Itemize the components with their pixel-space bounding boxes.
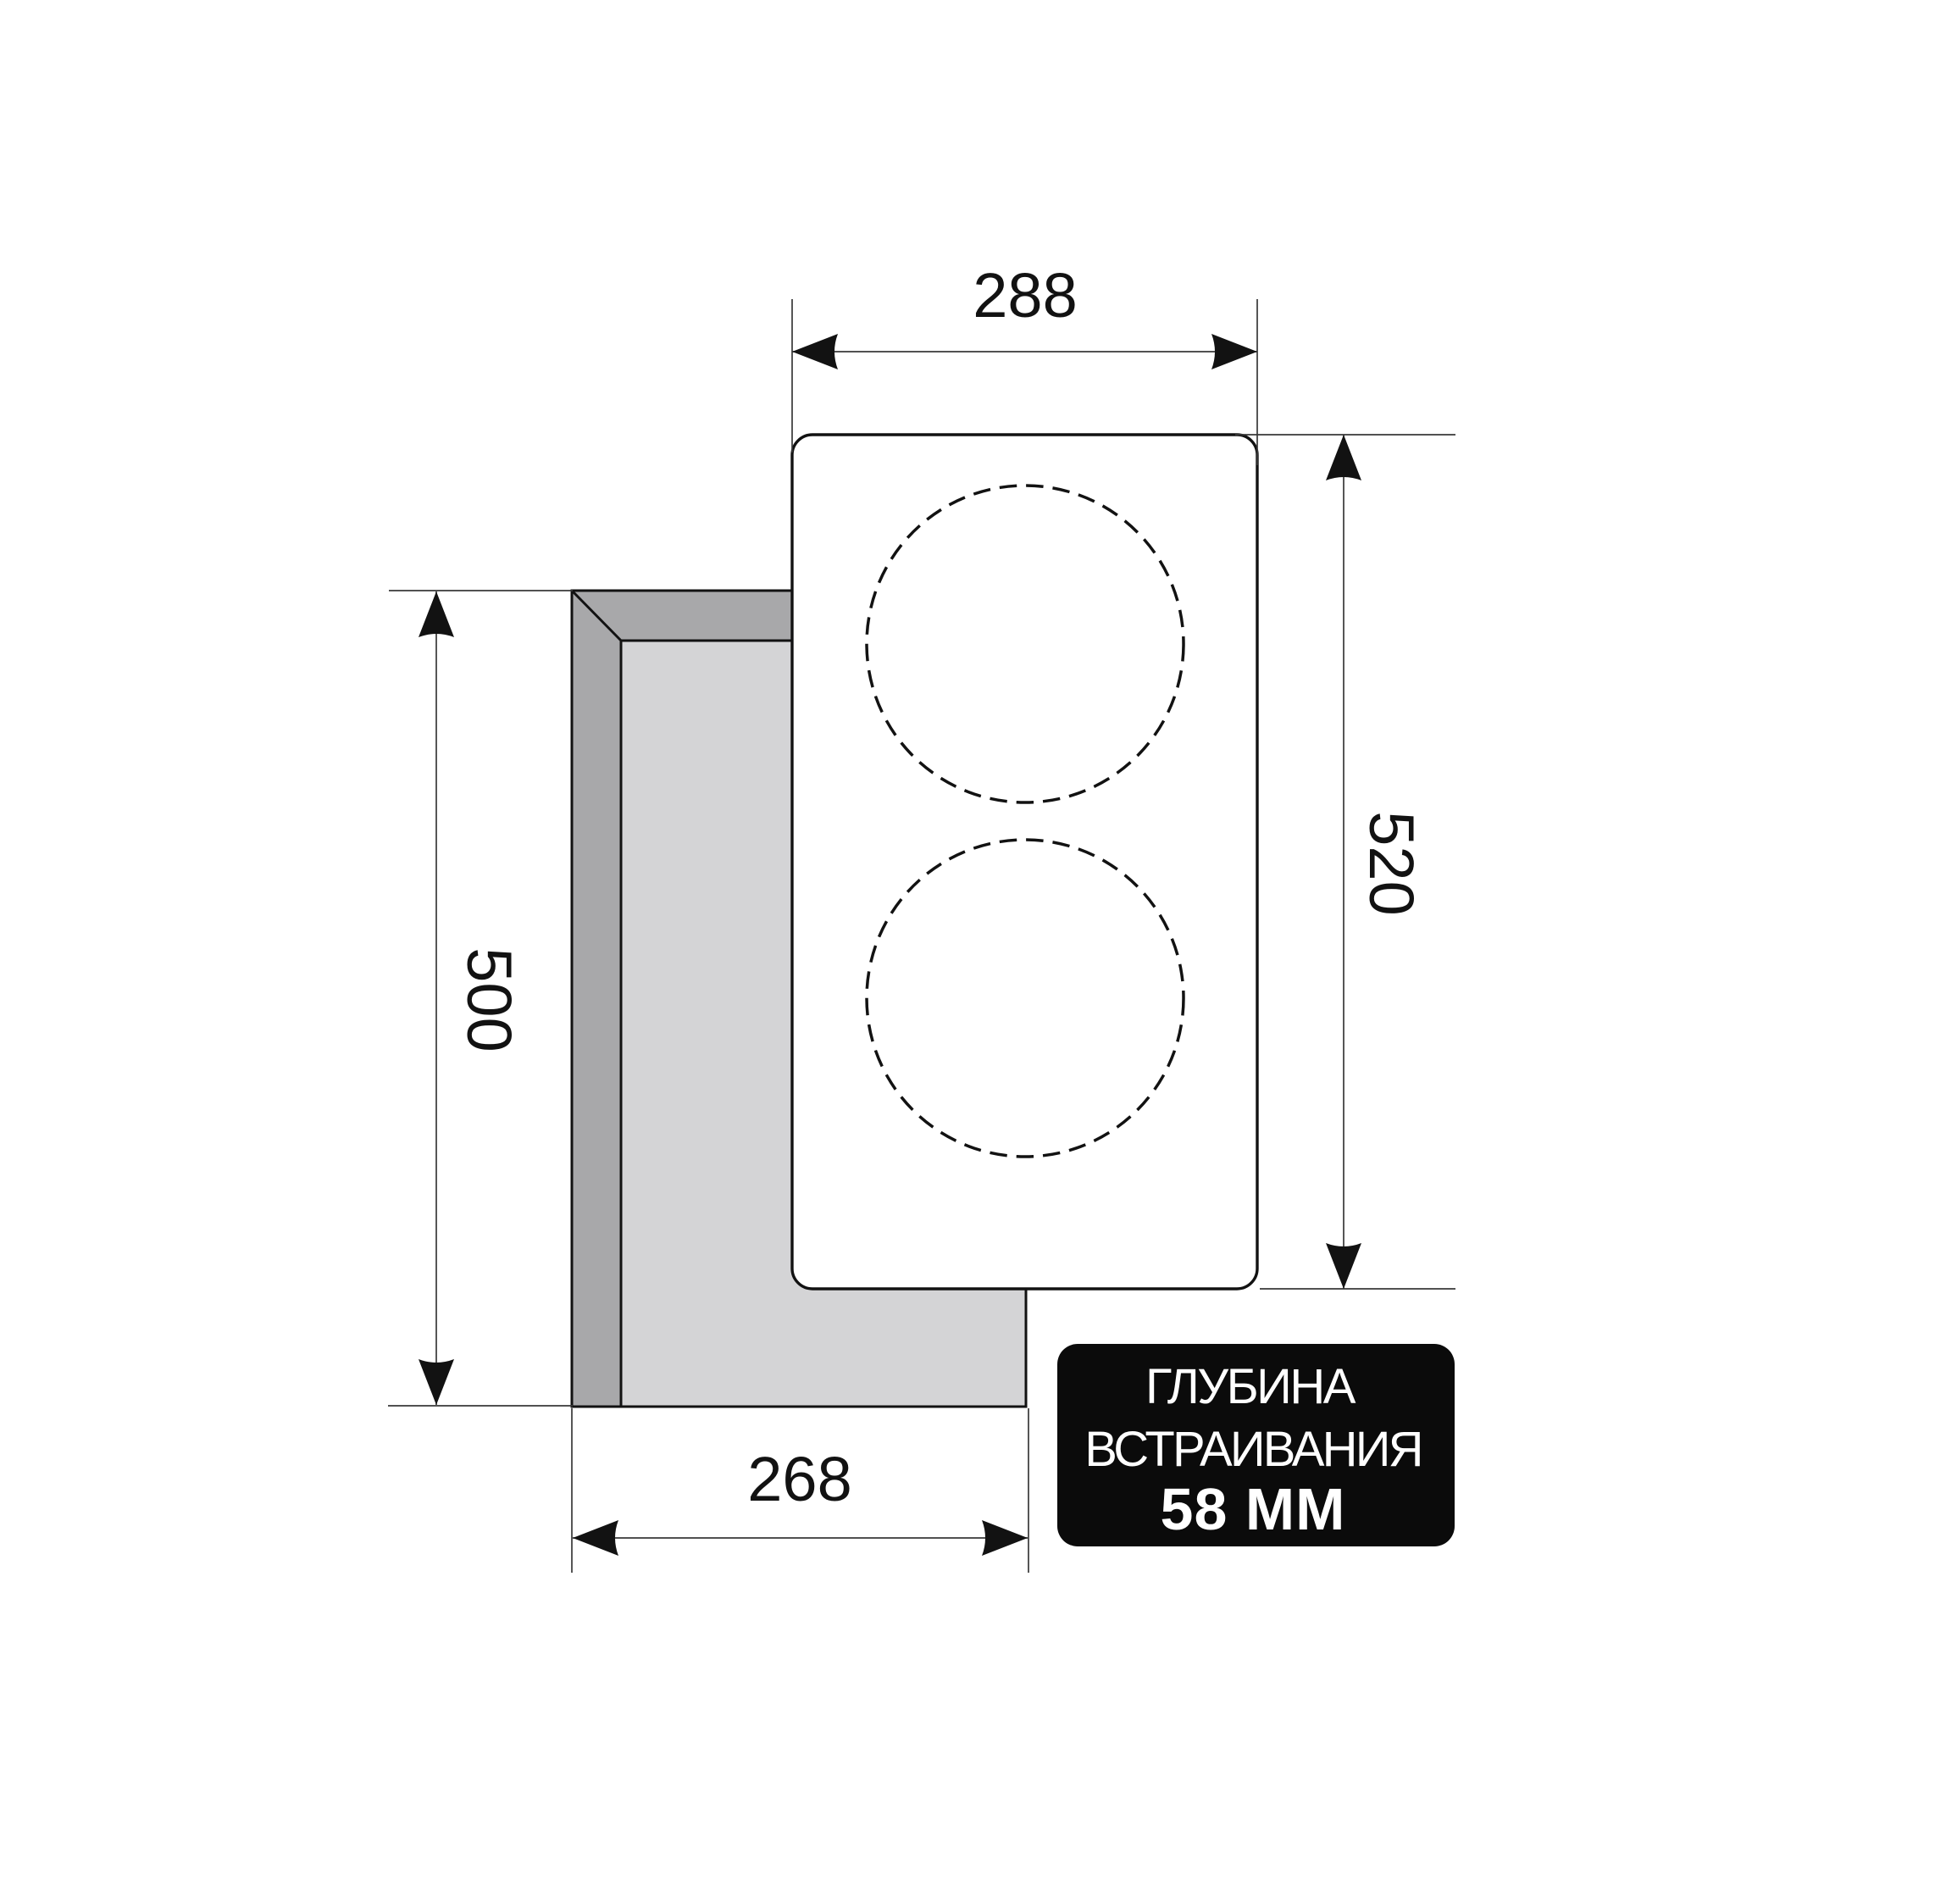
svg-text:500: 500 xyxy=(454,947,524,1052)
svg-text:288: 288 xyxy=(973,260,1077,330)
svg-text:58 ММ: 58 ММ xyxy=(1161,1476,1346,1542)
svg-text:ГЛУБИНА: ГЛУБИНА xyxy=(1145,1359,1356,1414)
svg-text:268: 268 xyxy=(747,1444,851,1514)
svg-text:ВСТРАИВАНИЯ: ВСТРАИВАНИЯ xyxy=(1084,1422,1421,1477)
svg-text:520: 520 xyxy=(1356,811,1427,915)
